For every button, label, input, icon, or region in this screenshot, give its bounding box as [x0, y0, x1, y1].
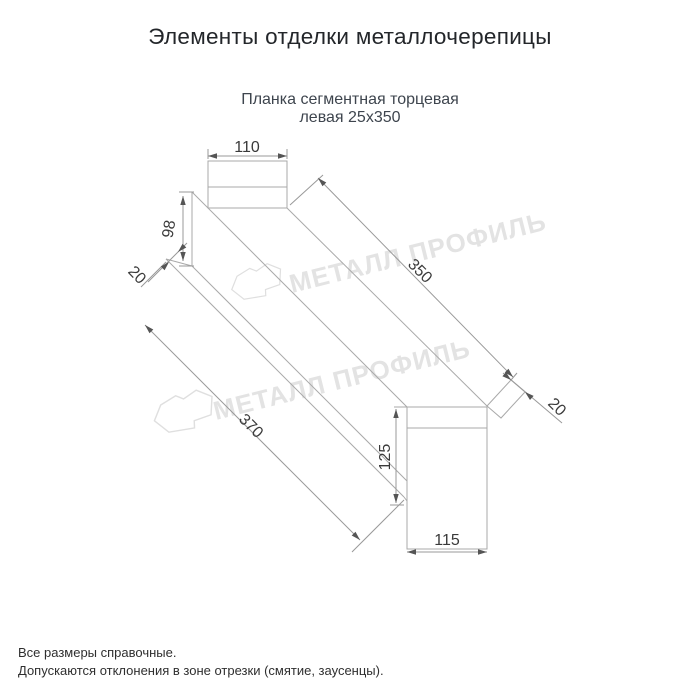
footnote-line1: Все размеры справочные. [18, 644, 384, 662]
dim-label-right-fold: 20 [544, 395, 569, 420]
dim-label-top-width: 110 [234, 139, 260, 156]
footnotes: Все размеры справочные. Допускаются откл… [18, 644, 384, 680]
top-end-section [208, 161, 287, 208]
dimension-arrows [145, 153, 534, 554]
dim-label-bottom-width: 115 [434, 532, 460, 549]
right-end-tab [487, 380, 525, 418]
metall-profil-logo-icon [150, 387, 218, 436]
dim-label-left-fold: 20 [124, 263, 149, 288]
dim-label-left-height: 98 [160, 219, 180, 240]
dim-label-right-height: 125 [377, 444, 394, 471]
footnote-line2: Допускаются отклонения в зоне отрезки (с… [18, 662, 384, 680]
dimension-labels: 110 98 20 350 20 370 125 115 [124, 139, 569, 549]
dimension-lines [141, 149, 562, 552]
watermark-brand-text: МЕТАЛЛ ПРОФИЛЬ [210, 333, 473, 426]
page-root: { "page": { "title": "Элементы отделки м… [0, 0, 700, 700]
technical-drawing: МЕТАЛЛ ПРОФИЛЬ МЕТАЛЛ ПРОФИЛЬ [0, 0, 700, 700]
watermark-row-2: МЕТАЛЛ ПРОФИЛЬ [150, 333, 473, 436]
watermark-row-1: МЕТАЛЛ ПРОФИЛЬ [228, 206, 549, 302]
metall-profil-logo-icon [228, 261, 285, 302]
watermark-brand-text: МЕТАЛЛ ПРОФИЛЬ [286, 206, 549, 299]
